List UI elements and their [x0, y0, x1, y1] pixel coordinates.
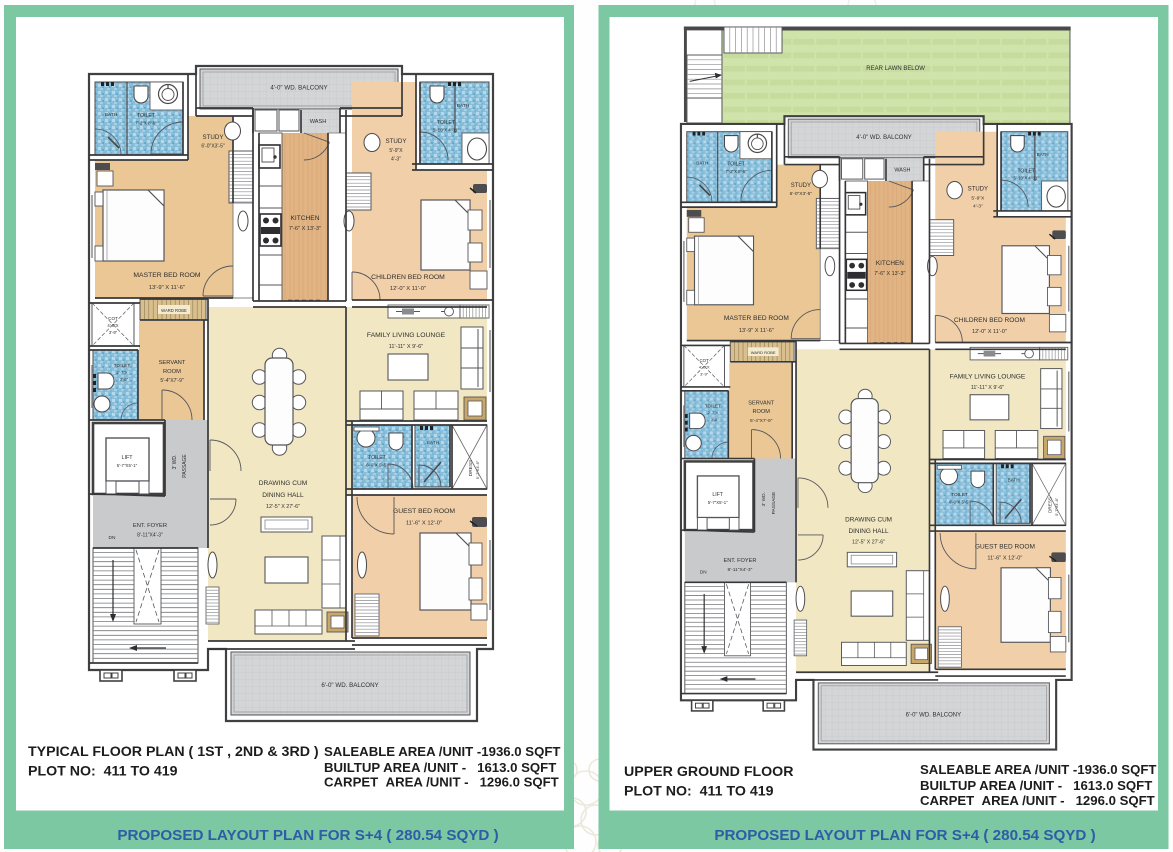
svg-text:3'-9": 3'-9" — [700, 371, 709, 376]
svg-text:11'-11" X 9'-6": 11'-11" X 9'-6" — [389, 344, 424, 350]
svg-text:LIFT: LIFT — [712, 492, 724, 498]
svg-text:8'-11"X4'-3": 8'-11"X4'-3" — [728, 567, 753, 573]
svg-text:PLOT NO: 411 TO 419: PLOT NO: 411 TO 419 — [28, 764, 178, 780]
svg-text:5'-10"X 4'-11": 5'-10"X 4'-11" — [1014, 176, 1040, 181]
svg-text:2'-7"X: 2'-7"X — [116, 370, 127, 375]
svg-text:REAR LAWN BELOW: REAR LAWN BELOW — [866, 66, 925, 72]
svg-text:4'-0"X: 4'-0"X — [107, 323, 118, 328]
svg-text:6'-0"X3'-5": 6'-0"X3'-5" — [201, 144, 224, 150]
svg-text:5'-9"X: 5'-9"X — [971, 195, 985, 201]
svg-text:5'-9"X: 5'-9"X — [389, 148, 403, 154]
svg-text:KITCHEN: KITCHEN — [876, 260, 904, 267]
svg-text:TOILET: TOILET — [727, 162, 744, 168]
svg-text:5'-7"X5'-1": 5'-7"X5'-1" — [708, 500, 728, 505]
svg-text:SALEABLE AREA /UNIT -1936.0 SQ: SALEABLE AREA /UNIT -1936.0 SQFT — [324, 744, 560, 759]
svg-text:BATH: BATH — [427, 440, 440, 446]
svg-text:TOILET: TOILET — [437, 120, 456, 126]
svg-text:BUILTUP AREA /UNIT - 1613.0: BUILTUP AREA /UNIT - 1613.0 SQFT — [920, 778, 1152, 793]
svg-text:DRAWING CUM: DRAWING CUM — [259, 480, 307, 487]
svg-text:KITCHEN: KITCHEN — [291, 215, 320, 222]
svg-text:11'-11" X 9'-6": 11'-11" X 9'-6" — [971, 385, 1004, 391]
svg-text:BATH: BATH — [457, 103, 470, 109]
svg-text:PROPOSED LAYOUT PLAN FOR S+4 (: PROPOSED LAYOUT PLAN FOR S+4 ( 280.54 SQ… — [714, 827, 1095, 844]
svg-text:8'-11"X4'-3": 8'-11"X4'-3" — [137, 533, 163, 539]
svg-text:7'-2"X 8'-6": 7'-2"X 8'-6" — [135, 121, 157, 126]
svg-text:5'-7"X4'-6": 5'-7"X4'-6" — [475, 460, 480, 479]
svg-text:12'-5" X 27'-6": 12'-5" X 27'-6" — [266, 504, 300, 510]
svg-text:ROOM: ROOM — [163, 369, 181, 375]
svg-text:DRAWING CUM: DRAWING CUM — [845, 516, 892, 523]
svg-text:6'-0" WD. BALCONY: 6'-0" WD. BALCONY — [906, 713, 961, 719]
svg-text:CARPET AREA /UNIT - 1296.0: CARPET AREA /UNIT - 1296.0 SQFT — [920, 793, 1155, 808]
svg-text:4'-3": 4'-3" — [391, 157, 401, 163]
svg-text:CHILDREN BED ROOM: CHILDREN BED ROOM — [371, 274, 445, 281]
svg-text:DN: DN — [700, 570, 707, 575]
svg-text:GUEST BED ROOM: GUEST BED ROOM — [393, 508, 456, 515]
svg-text:TOILET: TOILET — [137, 113, 156, 119]
svg-text:11'-6" X 12'-0": 11'-6" X 12'-0" — [987, 556, 1022, 562]
svg-text:ROOM: ROOM — [753, 409, 771, 415]
svg-text:3'-6": 3'-6" — [120, 377, 129, 382]
svg-text:3'-6": 3'-6" — [711, 417, 720, 422]
svg-text:2'-7"X: 2'-7"X — [707, 410, 718, 415]
svg-text:PLOT NO: 411 TO 419: PLOT NO: 411 TO 419 — [624, 784, 774, 800]
svg-text:6'-0"X 5'-5": 6'-0"X 5'-5" — [366, 463, 388, 468]
svg-text:PASSAGE: PASSAGE — [182, 454, 188, 478]
svg-text:3' WD.: 3' WD. — [172, 455, 178, 470]
svg-text:PASSAGE: PASSAGE — [771, 491, 777, 514]
svg-text:DRESS: DRESS — [1047, 497, 1052, 513]
svg-text:TOILET: TOILET — [705, 403, 721, 408]
svg-text:WASH: WASH — [894, 167, 910, 173]
svg-text:COT: COT — [108, 316, 118, 321]
svg-text:FAMILY LIVING LOUNGE: FAMILY LIVING LOUNGE — [367, 332, 446, 339]
svg-text:4'-3": 4'-3" — [973, 204, 983, 210]
svg-text:MASTER BED ROOM: MASTER BED ROOM — [133, 272, 201, 279]
svg-text:BUILTUP AREA /UNIT - 1613.0: BUILTUP AREA /UNIT - 1613.0 SQFT — [324, 760, 556, 775]
svg-text:7'-2"X 8'-6": 7'-2"X 8'-6" — [726, 169, 747, 174]
svg-text:STUDY: STUDY — [791, 183, 811, 189]
svg-text:5'-4"X7'-9": 5'-4"X7'-9" — [160, 378, 183, 384]
svg-text:6'-0"X3'-5": 6'-0"X3'-5" — [790, 191, 813, 197]
svg-text:WARD ROBE: WARD ROBE — [751, 350, 776, 355]
svg-text:DRESS: DRESS — [468, 460, 474, 477]
svg-text:TOILET: TOILET — [368, 455, 385, 461]
svg-text:PROPOSED LAYOUT PLAN FOR S+4 (: PROPOSED LAYOUT PLAN FOR S+4 ( 280.54 SQ… — [117, 827, 498, 844]
svg-text:TOILET: TOILET — [114, 363, 131, 369]
svg-text:BATH: BATH — [696, 161, 708, 166]
svg-text:WASH: WASH — [310, 119, 327, 125]
svg-text:13'-9" X 11'-6": 13'-9" X 11'-6" — [149, 285, 185, 291]
svg-text:13'-9" X 11'-6": 13'-9" X 11'-6" — [739, 328, 774, 334]
svg-text:COT: COT — [699, 358, 709, 363]
svg-text:4'-0" WD. BALCONY: 4'-0" WD. BALCONY — [270, 85, 327, 92]
svg-text:BATH: BATH — [105, 112, 118, 118]
svg-text:7'-6" X 13'-3": 7'-6" X 13'-3" — [874, 271, 905, 277]
svg-text:6'-0"X 5'-5": 6'-0"X 5'-5" — [949, 500, 970, 505]
svg-text:DINING HALL: DINING HALL — [262, 492, 304, 499]
svg-text:12'-5" X 27'-6": 12'-5" X 27'-6" — [852, 540, 885, 546]
svg-text:3'-9": 3'-9" — [109, 330, 118, 335]
svg-text:BATH: BATH — [1008, 478, 1020, 483]
svg-text:3' WD.: 3' WD. — [761, 492, 767, 506]
svg-text:STUDY: STUDY — [968, 187, 988, 193]
svg-text:SALEABLE AREA /UNIT -1936.0 SQ: SALEABLE AREA /UNIT -1936.0 SQFT — [920, 762, 1156, 777]
svg-text:TOILET: TOILET — [951, 492, 968, 498]
svg-text:WARD ROBE: WARD ROBE — [161, 308, 187, 313]
svg-text:5'-4"X7'-9": 5'-4"X7'-9" — [750, 418, 773, 424]
svg-text:12'-0" X 11'-0": 12'-0" X 11'-0" — [390, 286, 426, 292]
svg-text:FAMILY LIVING LOUNGE: FAMILY LIVING LOUNGE — [950, 373, 1026, 380]
svg-text:4'-0"X: 4'-0"X — [699, 365, 710, 370]
svg-text:CHILDREN BED ROOM: CHILDREN BED ROOM — [954, 317, 1025, 324]
svg-text:STUDY: STUDY — [386, 138, 407, 145]
svg-text:5'-10"X 4'-11": 5'-10"X 4'-11" — [433, 128, 460, 133]
svg-text:UPPER GROUND FLOOR: UPPER GROUND FLOOR — [624, 764, 793, 780]
svg-text:CARPET AREA /UNIT - 1296.0: CARPET AREA /UNIT - 1296.0 SQFT — [324, 775, 559, 790]
svg-text:ENT. FOYER: ENT. FOYER — [723, 558, 756, 564]
svg-text:STUDY: STUDY — [203, 134, 224, 141]
svg-text:DN: DN — [109, 535, 116, 541]
svg-text:SERVANT: SERVANT — [159, 360, 186, 366]
svg-text:TOILET: TOILET — [1017, 168, 1034, 174]
svg-text:DINING HALL: DINING HALL — [849, 528, 889, 535]
svg-text:6'-0" WD. BALCONY: 6'-0" WD. BALCONY — [321, 682, 378, 689]
svg-text:LIFT: LIFT — [121, 455, 133, 461]
svg-text:MASTER BED ROOM: MASTER BED ROOM — [724, 315, 789, 322]
svg-text:11'-6" X 12'-0": 11'-6" X 12'-0" — [406, 521, 442, 527]
svg-text:TYPICAL FLOOR PLAN ( 1ST , 2ND: TYPICAL FLOOR PLAN ( 1ST , 2ND & 3RD ) — [28, 744, 319, 760]
svg-text:BATH: BATH — [1037, 152, 1049, 157]
svg-text:12'-0" X 11'-0": 12'-0" X 11'-0" — [972, 329, 1007, 335]
svg-text:4'-0" WD. BALCONY: 4'-0" WD. BALCONY — [856, 135, 911, 141]
svg-text:GUEST BED ROOM: GUEST BED ROOM — [975, 543, 1035, 550]
svg-text:5'-7"X4'-6": 5'-7"X4'-6" — [1055, 497, 1059, 516]
svg-text:7'-6" X 13'-3": 7'-6" X 13'-3" — [289, 226, 321, 232]
svg-text:5'-7"X5'-1": 5'-7"X5'-1" — [117, 463, 138, 468]
svg-text:SERVANT: SERVANT — [748, 400, 774, 406]
svg-text:ENT. FOYER: ENT. FOYER — [133, 523, 167, 529]
